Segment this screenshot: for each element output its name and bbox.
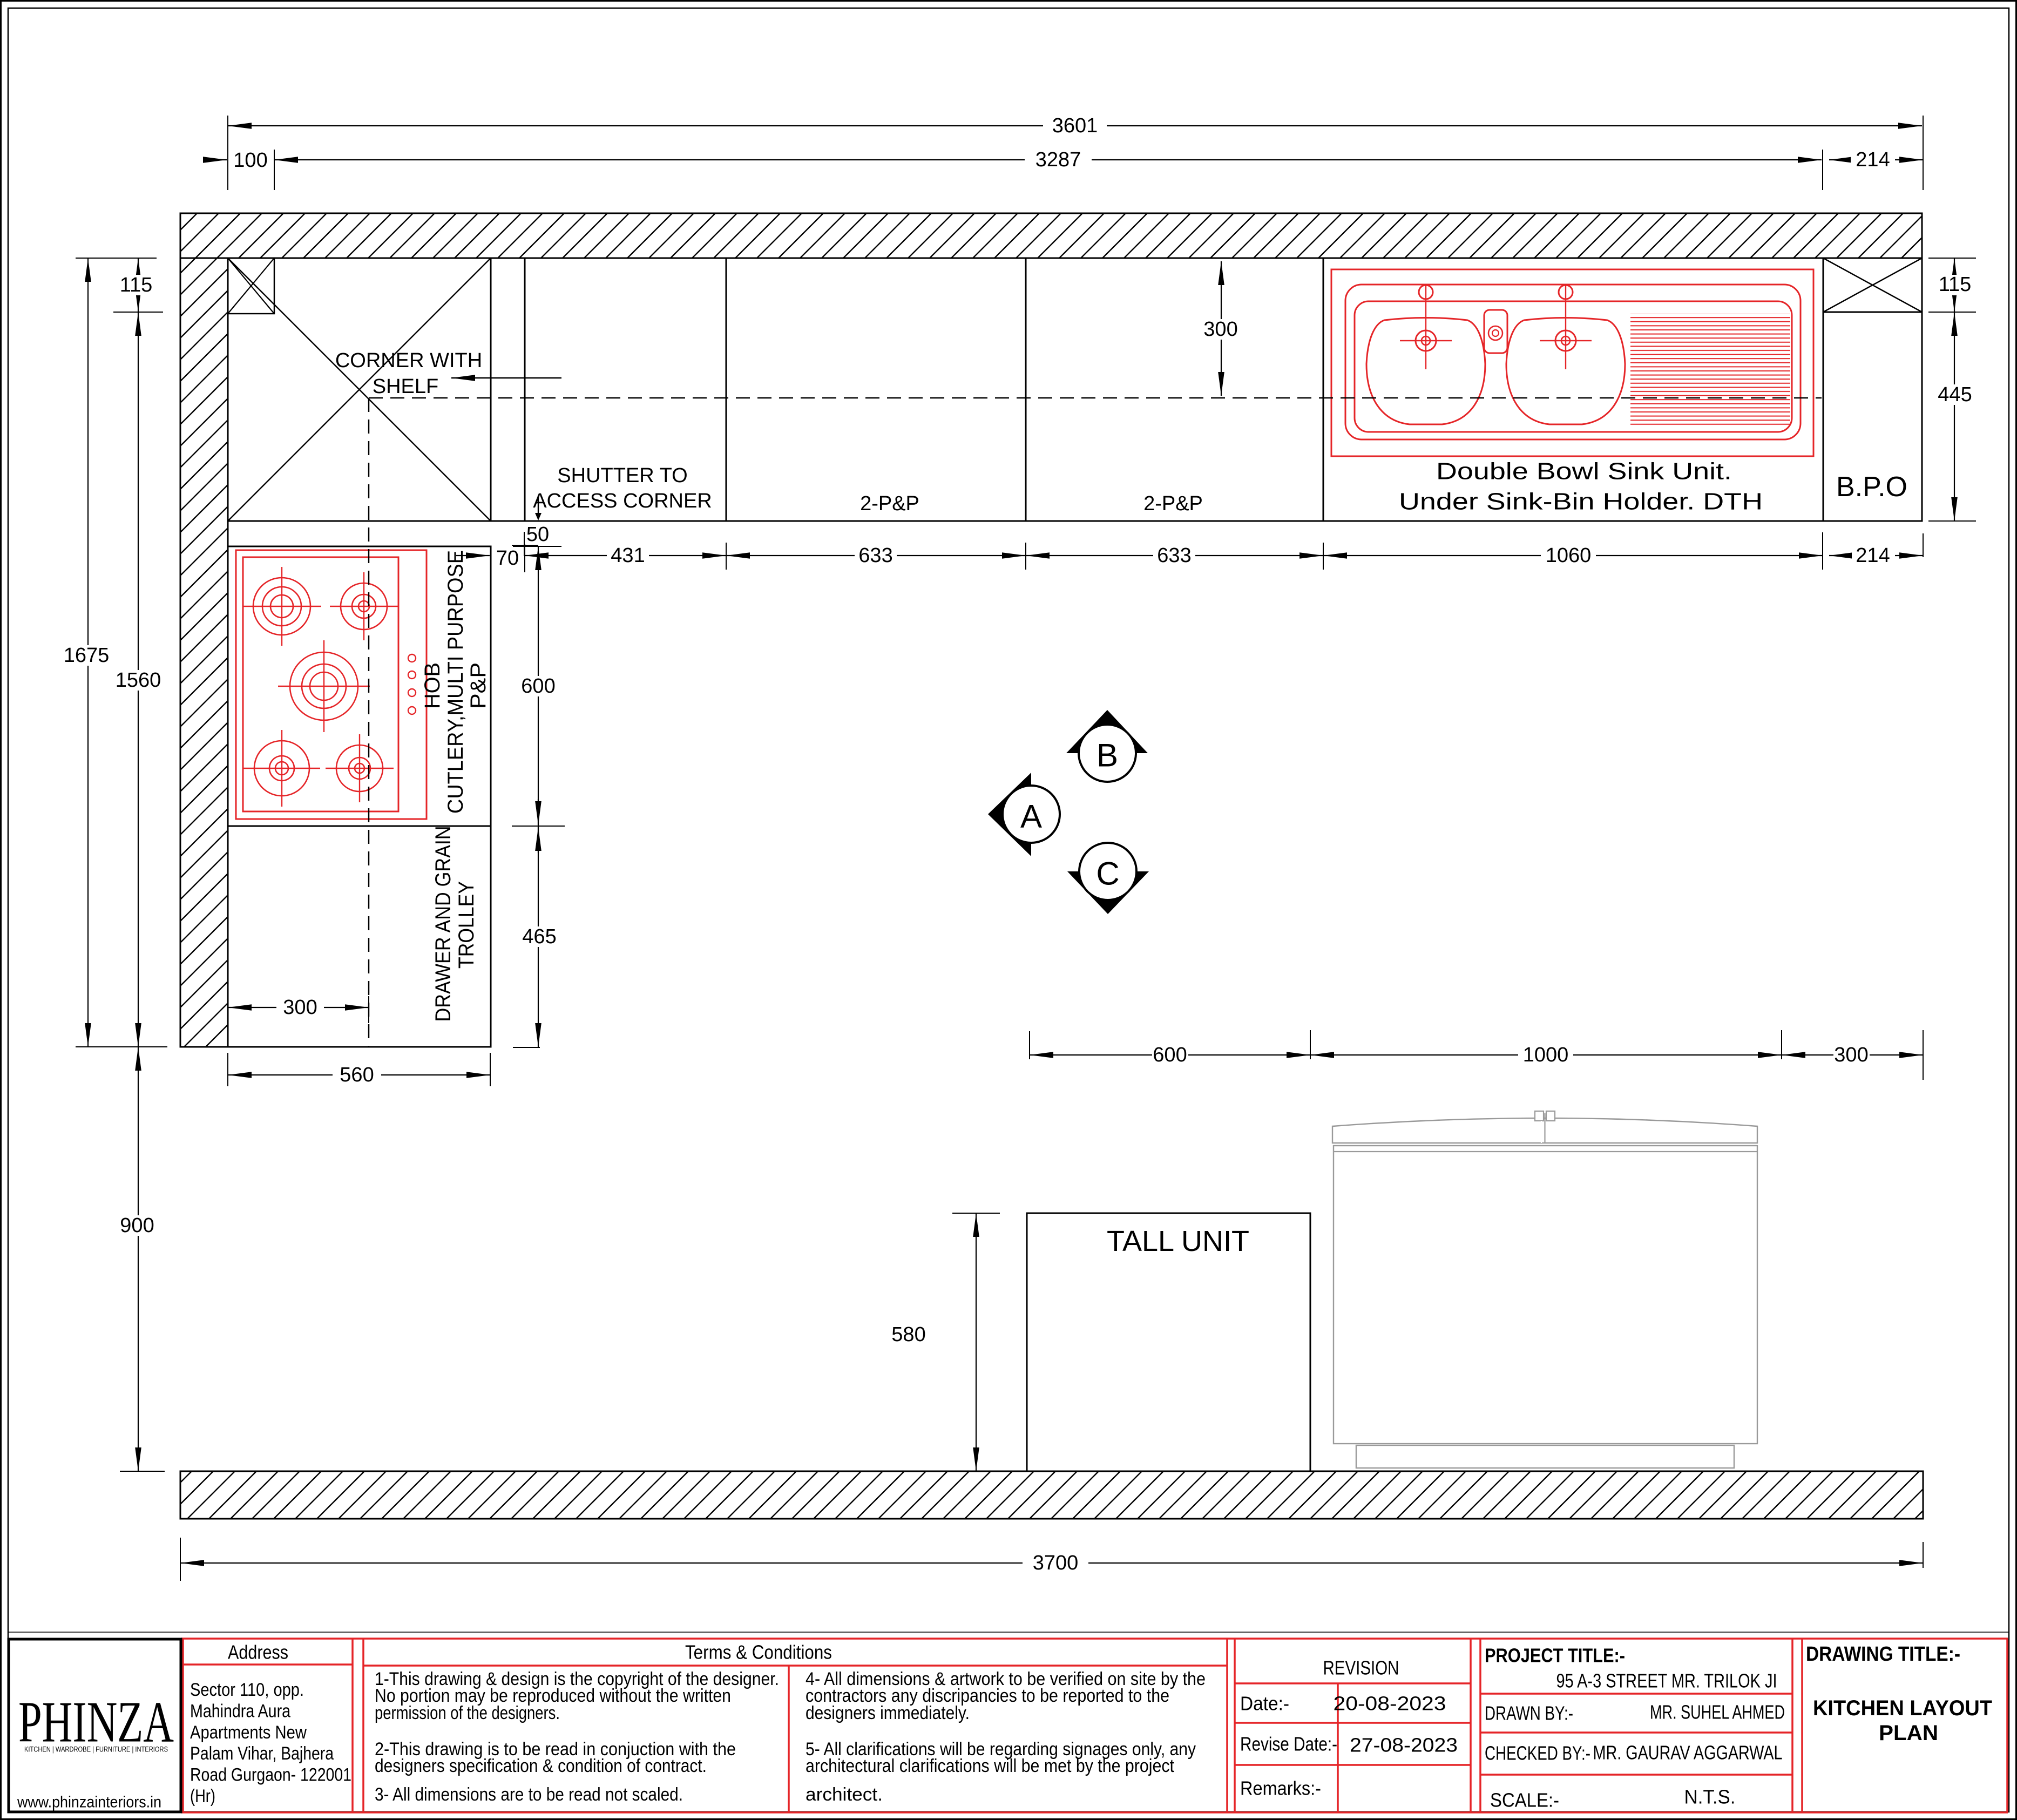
svg-text:B: B [1097,738,1118,774]
svg-text:Remarks:-: Remarks:- [1240,1777,1321,1799]
svg-text:900: 900 [120,1214,154,1237]
svg-text:Revise Date:-: Revise Date:- [1240,1733,1337,1755]
svg-text:architectural clarifications w: architectural clarifications will be met… [806,1756,1174,1776]
svg-text:1000: 1000 [1523,1044,1569,1066]
svg-text:115: 115 [1939,273,1972,296]
svg-text:MR. GAURAV AGGARWAL: MR. GAURAV AGGARWAL [1593,1742,1783,1764]
svg-text:3700: 3700 [1033,1552,1079,1574]
svg-text:300: 300 [1203,318,1237,341]
svg-text:KITCHEN LAYOUT: KITCHEN LAYOUT [1813,1696,1992,1720]
svg-text:2-P&P: 2-P&P [1143,492,1203,515]
svg-text:designers immediately.: designers immediately. [806,1703,970,1723]
svg-text:Apartments New: Apartments New [190,1722,307,1743]
svg-text:1060: 1060 [1546,544,1592,567]
svg-text:600: 600 [521,675,555,698]
svg-text:PLAN: PLAN [1879,1721,1938,1745]
svg-text:50: 50 [526,523,549,546]
svg-text:N.T.S.: N.T.S. [1684,1786,1736,1808]
svg-text:Mahindra Aura: Mahindra Aura [190,1701,290,1721]
svg-text:permission of the designers.: permission of the designers. [375,1703,560,1723]
svg-text:DRAWER AND GRAIN: DRAWER AND GRAIN [431,826,455,1022]
svg-text:20-08-2023: 20-08-2023 [1334,1693,1446,1715]
svg-text:CUTLERY,MULTI PURPOSE: CUTLERY,MULTI PURPOSE [444,550,468,814]
svg-text:Terms & Conditions: Terms & Conditions [685,1641,832,1663]
svg-text:580: 580 [891,1323,925,1346]
svg-text:Under Sink-Bin Holder. DTH: Under Sink-Bin Holder. DTH [1399,489,1763,515]
svg-text:ACCESS CORNER: ACCESS CORNER [533,490,712,512]
svg-text:MR. SUHEL AHMED: MR. SUHEL AHMED [1650,1701,1785,1723]
svg-text:www.phinzainteriors.in: www.phinzainteriors.in [17,1794,161,1811]
svg-text:3287: 3287 [1035,148,1081,171]
svg-text:HOB: HOB [421,662,444,709]
svg-text:115: 115 [120,274,153,296]
svg-text:465: 465 [522,925,556,948]
svg-text:KITCHEN | WARDROBE | FURNITURE: KITCHEN | WARDROBE | FURNITURE | INTERIO… [24,1745,168,1754]
svg-text:Date:-: Date:- [1240,1693,1289,1715]
svg-text:214: 214 [1856,148,1890,171]
svg-text:DRAWING TITLE:-: DRAWING TITLE:- [1806,1643,1960,1666]
svg-text:Road Gurgaon- 122001: Road Gurgaon- 122001 [190,1765,351,1785]
svg-text:designers specification & cond: designers specification & condition of c… [375,1756,707,1776]
svg-text:633: 633 [1157,544,1191,567]
svg-text:445: 445 [1938,383,1972,406]
svg-text:214: 214 [1856,544,1890,567]
svg-text:600: 600 [1153,1044,1187,1066]
svg-text:1560: 1560 [116,669,161,692]
svg-text:1675: 1675 [64,644,110,667]
svg-text:Double Bowl Sink Unit.: Double Bowl Sink Unit. [1436,458,1732,485]
svg-text:300: 300 [283,996,317,1019]
svg-text:27-08-2023: 27-08-2023 [1350,1734,1458,1756]
svg-text:architect.: architect. [806,1784,883,1805]
svg-text:100: 100 [233,149,267,172]
svg-text:SHUTTER TO: SHUTTER TO [557,464,687,487]
svg-text:Palam Vihar, Bajhera: Palam Vihar, Bajhera [190,1743,334,1764]
svg-text:TALL UNIT: TALL UNIT [1107,1225,1249,1257]
svg-text:(Hr): (Hr) [190,1786,215,1807]
svg-text:3601: 3601 [1052,114,1098,137]
svg-text:P&P: P&P [466,662,490,709]
svg-text:3- All dimensions are to be re: 3- All dimensions are to be read not sca… [375,1784,683,1805]
svg-text:95 A-3 STREET MR. TRILOK JI: 95 A-3 STREET MR. TRILOK JI [1556,1670,1777,1692]
svg-text:TROLLEY: TROLLEY [455,881,478,969]
svg-text:PROJECT TITLE:-: PROJECT TITLE:- [1485,1645,1625,1667]
svg-text:633: 633 [858,544,892,567]
svg-text:CHECKED BY:-: CHECKED BY:- [1485,1742,1590,1764]
svg-text:SHELF: SHELF [373,375,438,398]
svg-text:REVISION: REVISION [1323,1657,1399,1679]
svg-text:CORNER WITH: CORNER WITH [335,349,482,372]
svg-text:300: 300 [1834,1044,1868,1066]
svg-text:DRAWN BY:-: DRAWN BY:- [1485,1702,1573,1724]
svg-text:Sector 110, opp.: Sector 110, opp. [190,1680,304,1700]
svg-text:Address: Address [228,1641,288,1663]
svg-text:A: A [1020,799,1042,835]
svg-text:C: C [1096,856,1119,892]
svg-text:431: 431 [611,544,645,567]
svg-text:70: 70 [496,547,519,570]
svg-text:560: 560 [340,1064,374,1086]
svg-text:SCALE:-: SCALE:- [1490,1789,1559,1811]
svg-text:2-P&P: 2-P&P [860,492,919,515]
svg-text:B.P.O: B.P.O [1836,471,1907,503]
